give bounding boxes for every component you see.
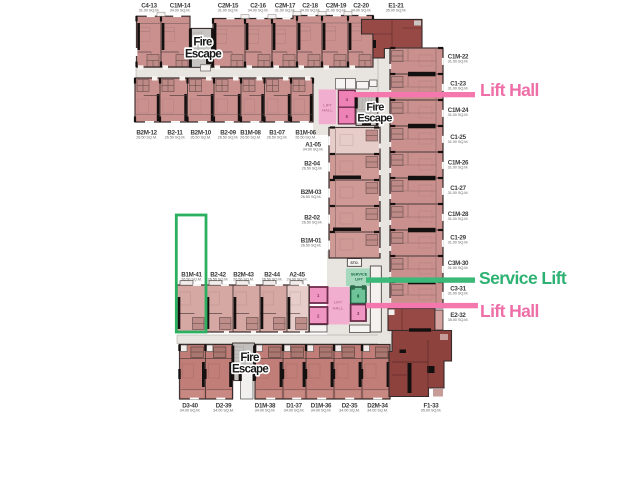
svg-text:26.50 SQ.M.: 26.50 SQ.M. (165, 135, 186, 140)
svg-text:HALL: HALL (322, 108, 333, 113)
svg-text:31.00 SQ.M.: 31.00 SQ.M. (448, 59, 469, 64)
svg-text:34.00 SQ.M.: 34.00 SQ.M. (248, 8, 269, 13)
svg-text:26.50 SQ.M.: 26.50 SQ.M. (267, 135, 288, 140)
svg-text:HALL: HALL (333, 306, 344, 311)
svg-text:35.00 SQ.M.: 35.00 SQ.M. (386, 8, 407, 13)
svg-text:31.00 SQ.M.: 31.00 SQ.M. (448, 190, 469, 195)
svg-text:31.00 SQ.M.: 31.00 SQ.M. (218, 8, 239, 13)
svg-text:31.00 SQ.M.: 31.00 SQ.M. (448, 165, 469, 170)
svg-text:26.50 SQ.M.: 26.50 SQ.M. (302, 220, 323, 225)
svg-text:26.50 SQ.M.: 26.50 SQ.M. (136, 135, 157, 140)
svg-text:31.00 SQ.M.: 31.00 SQ.M. (275, 8, 296, 13)
svg-text:STO.: STO. (350, 261, 358, 265)
svg-text:34.00 SQ.M.: 34.00 SQ.M. (300, 8, 321, 13)
svg-text:31.00 SQ.M.: 31.00 SQ.M. (448, 112, 469, 117)
svg-text:26.50 SQ.M.: 26.50 SQ.M. (218, 135, 239, 140)
svg-text:34.00 SQ.M.: 34.00 SQ.M. (284, 408, 305, 413)
svg-text:LIFT: LIFT (334, 300, 343, 305)
svg-text:34.00 SQ.M.: 34.00 SQ.M. (255, 408, 276, 413)
svg-text:34.00 SQ.M.: 34.00 SQ.M. (339, 408, 360, 413)
svg-text:31.00 SQ.M.: 31.00 SQ.M. (448, 265, 469, 270)
svg-text:Fire: Fire (193, 37, 212, 49)
svg-text:Escape: Escape (185, 49, 221, 61)
svg-text:26.50 SQ.M.: 26.50 SQ.M. (190, 135, 211, 140)
svg-text:34.00 SQ.M.: 34.00 SQ.M. (311, 408, 332, 413)
svg-text:Escape: Escape (357, 113, 392, 125)
svg-text:34.00 SQ.M.: 34.00 SQ.M. (367, 408, 388, 413)
svg-text:26.50 SQ.M.: 26.50 SQ.M. (301, 194, 322, 199)
svg-text:26.50 SQ.M.: 26.50 SQ.M. (240, 135, 261, 140)
svg-text:31.00 SQ.M.: 31.00 SQ.M. (448, 240, 469, 245)
svg-text:26.50 SQ.M.: 26.50 SQ.M. (181, 277, 202, 282)
svg-text:LIFT: LIFT (355, 278, 364, 282)
svg-text:26.50 SQ.M.: 26.50 SQ.M. (301, 243, 322, 248)
svg-text:35.00 SQ.M.: 35.00 SQ.M. (448, 317, 469, 322)
svg-text:26.50 SQ.M.: 26.50 SQ.M. (302, 166, 323, 171)
svg-text:26.50 SQ.M.: 26.50 SQ.M. (208, 277, 229, 282)
svg-text:31.00 SQ.M.: 31.00 SQ.M. (448, 86, 469, 91)
svg-text:31.00 SQ.M.: 31.00 SQ.M. (139, 8, 160, 13)
svg-text:Escape: Escape (232, 364, 268, 376)
svg-text:SERVICE: SERVICE (351, 273, 368, 277)
svg-text:31.00 SQ.M.: 31.00 SQ.M. (326, 8, 347, 13)
svg-text:31.00 SQ.M.: 31.00 SQ.M. (448, 216, 469, 221)
svg-text:Service Lift: Service Lift (479, 268, 567, 288)
svg-text:Fire: Fire (240, 352, 259, 364)
svg-text:34.00 SQ.M.: 34.00 SQ.M. (303, 147, 324, 152)
svg-text:31.00 SQ.M.: 31.00 SQ.M. (448, 139, 469, 144)
svg-text:26.50 SQ.M.: 26.50 SQ.M. (262, 277, 283, 282)
svg-text:34.00 SQ.M.: 34.00 SQ.M. (180, 408, 201, 413)
svg-text:34.00 SQ.M.: 34.00 SQ.M. (213, 408, 234, 413)
svg-text:24.00 SQ.M.: 24.00 SQ.M. (287, 277, 308, 282)
svg-text:Lift Hall: Lift Hall (480, 301, 539, 321)
svg-text:31.00 SQ.M.: 31.00 SQ.M. (448, 291, 469, 296)
svg-text:95.00 SQ.M.: 95.00 SQ.M. (421, 408, 442, 413)
svg-text:Lift Hall: Lift Hall (480, 80, 539, 100)
svg-text:26.50 SQ.M.: 26.50 SQ.M. (295, 135, 316, 140)
svg-text:34.00 SQ.M.: 34.00 SQ.M. (170, 8, 191, 13)
svg-text:26.50 SQ.M.: 26.50 SQ.M. (233, 277, 254, 282)
svg-text:34.00 SQ.M.: 34.00 SQ.M. (351, 8, 372, 13)
